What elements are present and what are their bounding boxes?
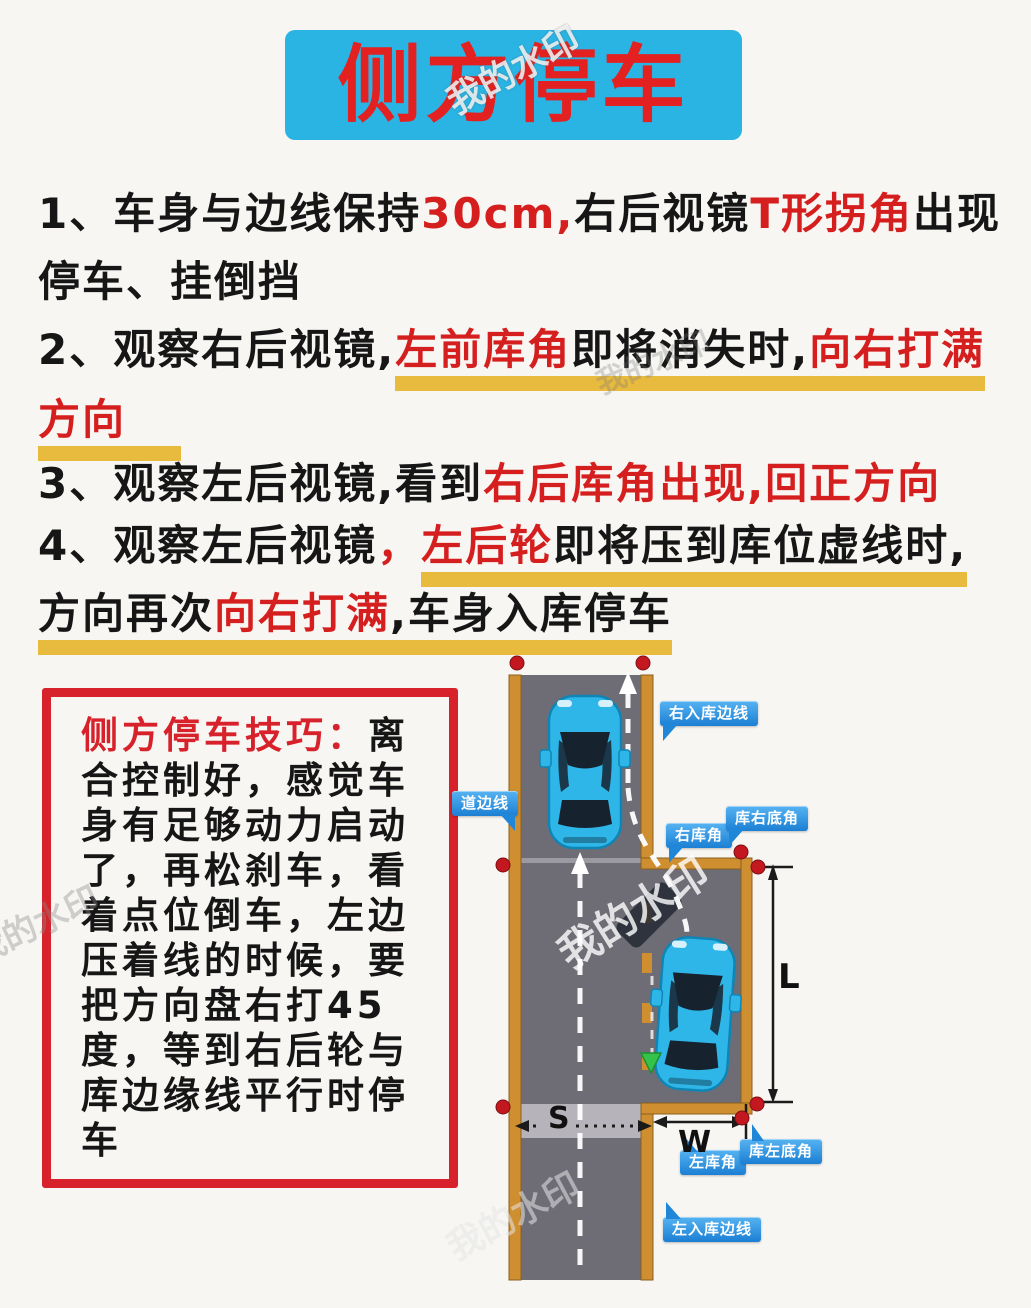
stop-point-marker xyxy=(641,1053,661,1073)
step-segment: 方向再次 xyxy=(38,589,214,638)
car-driving-forward xyxy=(540,696,630,848)
step-segment: 停车、挂倒挡 xyxy=(38,257,302,306)
maneuver-path xyxy=(580,694,687,1278)
step-line-7: 方向再次向右打满,车身入库停车 xyxy=(38,590,672,637)
page-title: 侧方停车 xyxy=(337,43,689,127)
dim-road-width-label: S xyxy=(548,1104,570,1134)
underlined-phrase: 左前库角即将消失时,向右打满 xyxy=(395,325,985,391)
callout-bay-right-bottom-corner: 库右底角 xyxy=(726,806,808,831)
watermark-text: 我的水印 xyxy=(436,1157,588,1271)
step-segment: 3、观察左后视镜,看到 xyxy=(38,459,483,508)
road-measure-band xyxy=(512,1104,652,1138)
step-segment: 出现 xyxy=(913,189,1001,238)
road-faint-line xyxy=(512,858,652,863)
underlined-phrase: 方向再次向右打满,车身入库停车 xyxy=(38,589,672,655)
step-line-3: 2、观察右后视镜,左前库角即将消失时,向右打满 xyxy=(38,326,985,373)
step-segment-highlight: ， xyxy=(377,521,421,570)
dim-width-label: W xyxy=(678,1128,711,1158)
title-banner: 侧方停车 xyxy=(285,30,742,140)
step-segment: ,车身入库停车 xyxy=(390,589,672,638)
corner-dots xyxy=(496,656,765,1125)
callout-right-entry-edge-line: 右入库边线 xyxy=(660,701,758,726)
callout-road-edge-line: 道边线 xyxy=(452,791,518,816)
car-parked-in-bay xyxy=(645,935,745,1093)
callout-right-bay-corner: 右库角 xyxy=(666,823,732,848)
tips-box: 侧方停车技巧：离合控制好，感觉车身有足够动力启动了，再松刹车，看着点位倒车，左边… xyxy=(42,688,458,1188)
step-segment: 2、观察右后视镜, xyxy=(38,325,395,374)
underlined-phrase: 左后轮即将压到库位虚线时, xyxy=(421,521,967,587)
road-surface xyxy=(512,675,652,1280)
parking-bay-surface xyxy=(641,858,752,1114)
step-line-5: 3、观察左后视镜,看到右后库角出现,回正方向 xyxy=(38,460,941,507)
underlined-phrase: 方向 xyxy=(38,395,181,461)
step-segment-highlight: 方向 xyxy=(38,395,126,444)
step-segment-highlight: 向右打满 xyxy=(214,589,390,638)
step-line-6: 4、观察左后视镜，左后轮即将压到库位虚线时, xyxy=(38,522,967,569)
step-segment-highlight: 30cm, xyxy=(421,189,574,238)
dim-length-label: L xyxy=(778,960,800,994)
step-line-1: 1、车身与边线保持30cm,右后视镜T形拐角出现 xyxy=(38,190,1001,237)
callout-left-entry-edge-line: 左入库边线 xyxy=(663,1217,761,1242)
step-segment: 右后视镜 xyxy=(574,189,750,238)
step-segment-highlight: 左后轮 xyxy=(421,521,553,570)
path-arrowhead-up xyxy=(619,672,637,694)
step-segment: 4、观察左后视镜 xyxy=(38,521,377,570)
callout-bay-left-bottom-corner: 库左底角 xyxy=(740,1139,822,1164)
tips-body: 离合控制好，感觉车身有足够动力启动了，再松刹车，看着点位倒车，左边压着线的时候，… xyxy=(81,714,409,1162)
step-segment-highlight: 左前库角 xyxy=(395,325,571,374)
tips-heading: 侧方停车技巧： xyxy=(81,714,368,757)
watermark-text: 我的水印 xyxy=(545,840,720,981)
lane-boundary-lines xyxy=(509,675,752,1280)
step-segment-highlight: T形拐角 xyxy=(750,189,913,238)
step-line-2: 停车、挂倒挡 xyxy=(38,258,302,305)
step-segment: 即将消失时, xyxy=(571,325,809,374)
step-segment-highlight: 向右打满 xyxy=(809,325,985,374)
step-segment-highlight: 右后库角出现,回正方向 xyxy=(483,459,941,508)
parking-infographic-page: 侧方停车 1、车身与边线保持30cm,右后视镜T形拐角出现 停车、挂倒挡 2、观… xyxy=(0,0,1031,1308)
ghost-car-angled xyxy=(614,880,685,951)
path-arrowhead-up xyxy=(571,852,589,874)
step-segment: 即将压到库位虚线时, xyxy=(553,521,967,570)
step-line-4: 方向 xyxy=(38,396,181,443)
step-segment: 1、车身与边线保持 xyxy=(38,189,421,238)
